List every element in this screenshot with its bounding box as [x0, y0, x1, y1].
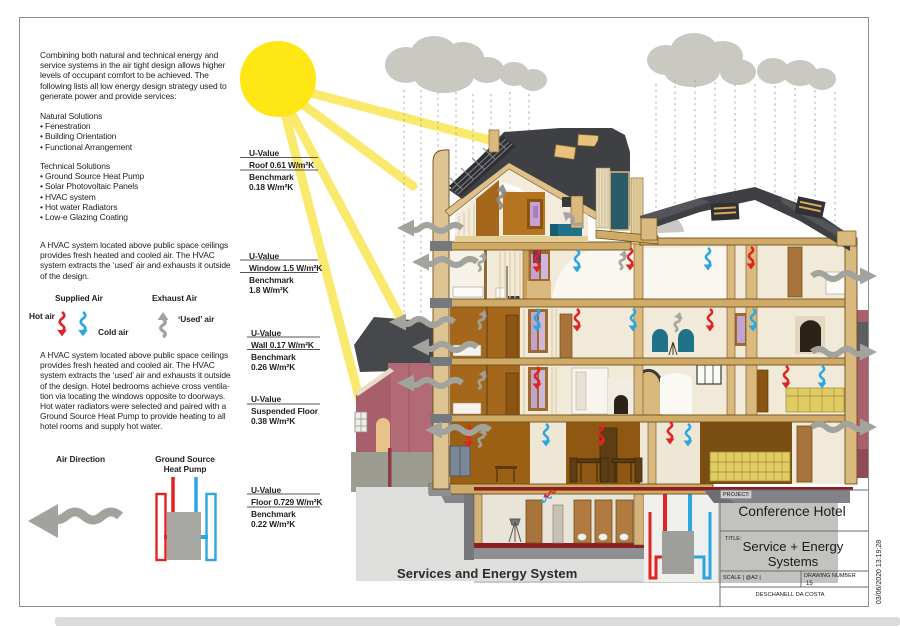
- svg-text:15: 15: [806, 581, 813, 587]
- svg-text:Systems: Systems: [768, 554, 819, 569]
- svg-text:03/06/2020 13:19:28: 03/06/2020 13:19:28: [876, 540, 883, 604]
- svg-text:DRAWING NUMBER: DRAWING NUMBER: [804, 573, 856, 579]
- svg-text:Service + Energy: Service + Energy: [743, 539, 844, 554]
- svg-text:Services and Energy System: Services and Energy System: [397, 566, 577, 581]
- svg-text:PROJECT:: PROJECT:: [723, 492, 750, 498]
- svg-text:TITLE:: TITLE:: [725, 536, 742, 542]
- svg-text:SCALE | @A2 |: SCALE | @A2 |: [723, 575, 761, 581]
- svg-text:Conference Hotel: Conference Hotel: [738, 504, 845, 519]
- svg-text:DESCHANELL DA COSTA: DESCHANELL DA COSTA: [756, 592, 825, 598]
